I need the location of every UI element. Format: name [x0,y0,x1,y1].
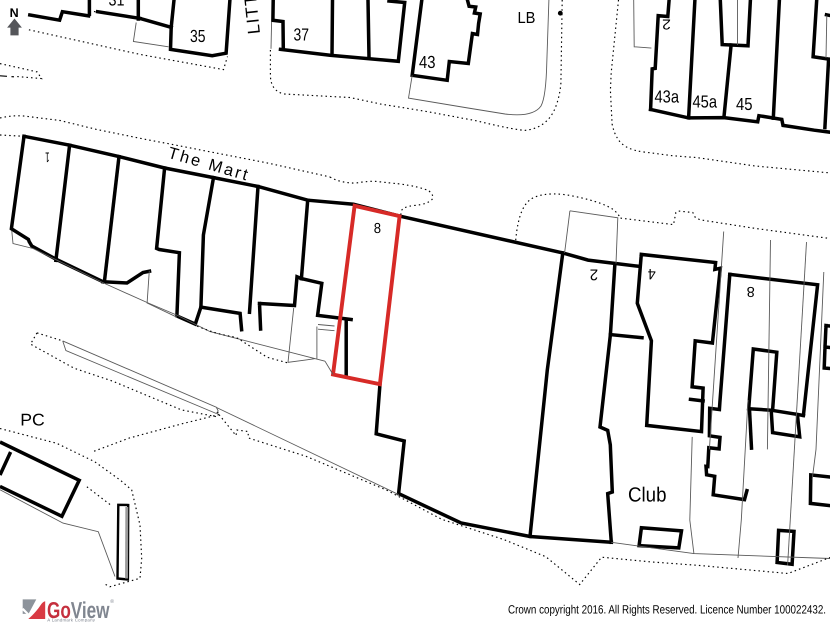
svg-text:31: 31 [109,0,125,10]
svg-text:4: 4 [648,265,656,282]
svg-text:PC: PC [20,411,45,430]
svg-text:43a: 43a [655,87,680,107]
svg-text:N: N [10,6,19,20]
svg-text:Crown copyright 2016. All Righ: Crown copyright 2016. All Rights Reserve… [508,603,826,617]
svg-text:2: 2 [662,16,671,32]
svg-text:2: 2 [590,266,598,283]
svg-text:45a: 45a [693,92,718,112]
svg-text:1: 1 [45,150,50,166]
svg-text:35: 35 [190,26,206,46]
svg-text:45: 45 [736,94,753,114]
svg-text:®: ® [110,599,114,605]
svg-text:Club: Club [628,484,667,507]
svg-text:43: 43 [419,52,436,72]
svg-text:37: 37 [294,25,310,45]
svg-text:8: 8 [747,283,755,299]
svg-text:8: 8 [374,221,381,237]
svg-text:LB: LB [518,10,536,27]
svg-text:A Landmark Company: A Landmark Company [47,618,95,622]
